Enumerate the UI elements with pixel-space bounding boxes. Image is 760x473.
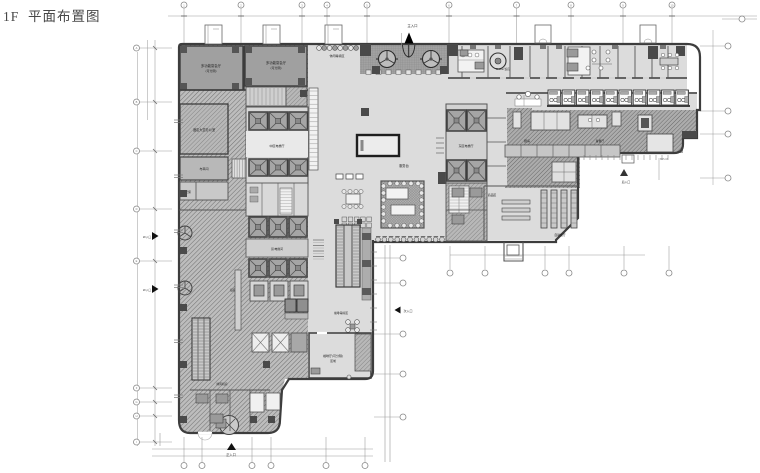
- svg-text:咖啡等候区: 咖啡等候区: [334, 311, 348, 315]
- svg-text:D: D: [136, 207, 138, 211]
- svg-text:厨房: 厨房: [524, 138, 530, 143]
- svg-text:多功能宴会厅: 多功能宴会厅: [266, 60, 287, 65]
- svg-text:服务台: 服务台: [399, 163, 409, 168]
- svg-text:后入口: 后入口: [622, 180, 631, 184]
- svg-text:2F入口: 2F入口: [143, 288, 152, 292]
- svg-text:B05-03: B05-03: [660, 158, 668, 161]
- svg-text:休闲等候区: 休闲等候区: [329, 53, 344, 58]
- svg-text:东区电梯厅: 东区电梯厅: [458, 143, 473, 148]
- svg-text:中区电梯厅: 中区电梯厅: [269, 143, 284, 148]
- svg-text:Brunei 饭店: Brunei 饭店: [496, 67, 510, 71]
- svg-text:布草间: 布草间: [199, 166, 208, 171]
- svg-text:多功能宴会厅: 多功能宴会厅: [201, 63, 222, 68]
- svg-text:A: A: [136, 46, 138, 50]
- svg-text:备餐厅: 备餐厅: [596, 139, 605, 143]
- svg-text:咖啡厅(可分隔): 咖啡厅(可分隔): [323, 353, 343, 358]
- svg-text:B: B: [136, 100, 138, 104]
- svg-text:正入口: 正入口: [226, 453, 236, 457]
- svg-text:H: H: [136, 414, 138, 418]
- svg-text:排风机房: 排风机房: [216, 382, 227, 386]
- svg-text:G: G: [135, 400, 137, 404]
- svg-text:(可分隔): (可分隔): [206, 68, 217, 73]
- svg-text:区域: 区域: [330, 359, 336, 363]
- svg-text:酒店大堂办公室: 酒店大堂办公室: [193, 127, 215, 132]
- svg-text:货/电梯间: 货/电梯间: [271, 247, 283, 251]
- svg-text:自助餐厅: 自助餐厅: [554, 233, 565, 237]
- svg-text:2F入口: 2F入口: [143, 235, 152, 239]
- svg-text:次入口: 次入口: [403, 308, 412, 313]
- svg-text:E: E: [136, 259, 138, 263]
- svg-text:商品区: 商品区: [488, 193, 497, 197]
- svg-text:1F 平面布置图: 1F 平面布置图: [3, 9, 101, 24]
- svg-text:C: C: [136, 149, 138, 153]
- svg-text:主入口: 主入口: [407, 23, 417, 28]
- svg-text:(可分隔): (可分隔): [271, 65, 282, 70]
